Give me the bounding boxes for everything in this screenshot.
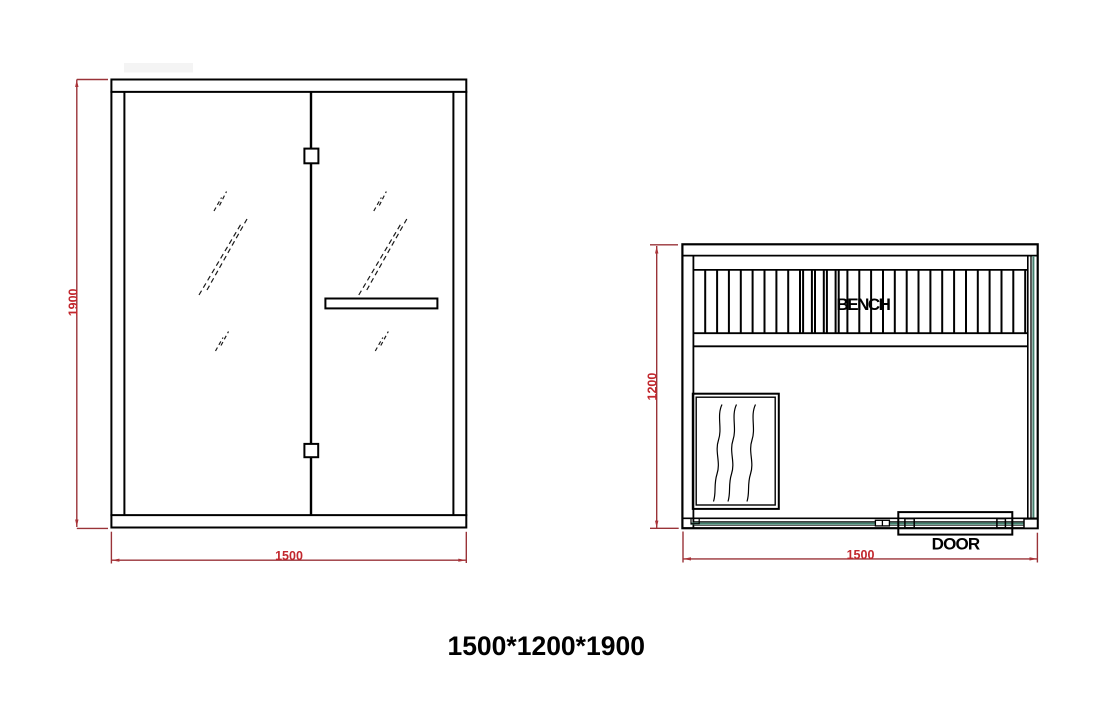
svg-text:1500: 1500	[847, 548, 875, 562]
svg-text:1500*1200*1900: 1500*1200*1900	[447, 631, 644, 661]
svg-text:1900: 1900	[66, 288, 80, 316]
svg-text:1200: 1200	[645, 373, 659, 401]
svg-text:DOOR: DOOR	[932, 535, 980, 554]
svg-text:1500: 1500	[275, 549, 303, 563]
svg-text:BENCH: BENCH	[837, 295, 891, 314]
